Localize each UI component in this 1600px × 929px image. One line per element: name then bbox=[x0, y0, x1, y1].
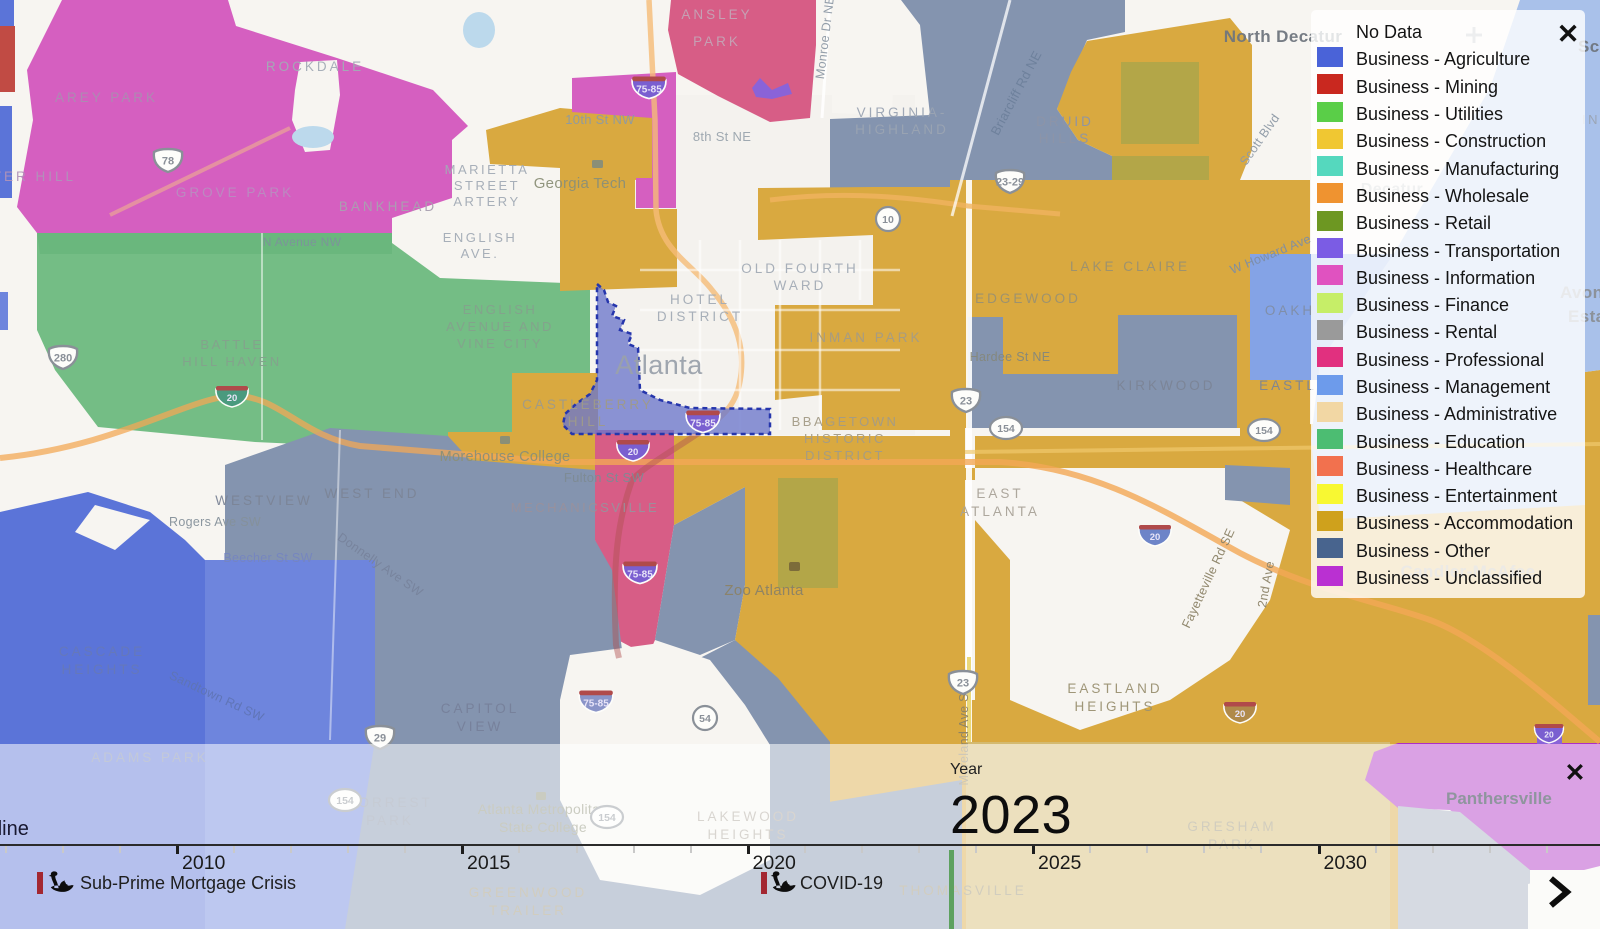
svg-text:ANSLEY: ANSLEY bbox=[681, 7, 752, 22]
svg-text:DRUID: DRUID bbox=[1036, 114, 1094, 129]
svg-text:HIGHLAND: HIGHLAND bbox=[855, 122, 949, 137]
svg-text:20: 20 bbox=[1235, 709, 1246, 720]
svg-text:75-85: 75-85 bbox=[690, 418, 716, 429]
svg-text:20: 20 bbox=[1150, 532, 1161, 543]
svg-text:ENGLISH: ENGLISH bbox=[443, 230, 518, 245]
svg-text:75-85: 75-85 bbox=[636, 84, 662, 95]
svg-text:Beecher St SW: Beecher St SW bbox=[223, 551, 312, 565]
svg-text:20: 20 bbox=[227, 393, 238, 404]
svg-text:HILLS: HILLS bbox=[1039, 131, 1092, 146]
svg-text:WEST END: WEST END bbox=[324, 486, 419, 501]
svg-text:HILL: HILL bbox=[568, 414, 609, 429]
svg-text:20: 20 bbox=[1544, 730, 1554, 740]
svg-text:AREY PARK: AREY PARK bbox=[55, 90, 158, 105]
svg-text:10: 10 bbox=[882, 214, 894, 226]
svg-text:GROVE PARK: GROVE PARK bbox=[176, 185, 294, 200]
svg-text:Morehouse College: Morehouse College bbox=[440, 449, 571, 465]
svg-text:75-85: 75-85 bbox=[583, 698, 609, 709]
svg-text:ENGLISH: ENGLISH bbox=[463, 302, 538, 317]
svg-text:29: 29 bbox=[374, 733, 386, 745]
svg-text:KIRKWOOD: KIRKWOOD bbox=[1116, 378, 1215, 393]
svg-text:DISTRICT: DISTRICT bbox=[805, 448, 885, 463]
svg-text:154: 154 bbox=[997, 423, 1015, 435]
svg-text:280: 280 bbox=[54, 353, 72, 365]
svg-text:HILL HAVEN: HILL HAVEN bbox=[182, 354, 281, 369]
svg-text:154: 154 bbox=[1255, 425, 1273, 437]
svg-text:ROCKDALE: ROCKDALE bbox=[266, 59, 364, 74]
svg-text:VIRGINIA-: VIRGINIA- bbox=[857, 105, 948, 120]
svg-text:BBAGETOWN: BBAGETOWN bbox=[792, 414, 899, 429]
svg-text:75-85: 75-85 bbox=[627, 569, 653, 580]
svg-text:HEIGHTS: HEIGHTS bbox=[1074, 699, 1155, 714]
svg-text:78: 78 bbox=[162, 156, 174, 168]
svg-text:N Avenue NW: N Avenue NW bbox=[263, 235, 342, 249]
svg-text:ARTERY: ARTERY bbox=[453, 194, 520, 209]
svg-text:Atlanta: Atlanta bbox=[615, 350, 703, 380]
svg-text:WESTVIEW: WESTVIEW bbox=[215, 493, 313, 508]
svg-text:AVE.: AVE. bbox=[461, 246, 500, 261]
svg-text:BATTLE: BATTLE bbox=[200, 337, 263, 352]
svg-text:MARIETTA: MARIETTA bbox=[445, 162, 530, 177]
svg-text:OAKH: OAKH bbox=[1265, 303, 1315, 318]
svg-text:Fulton St SW: Fulton St SW bbox=[564, 470, 645, 485]
svg-text:WARD: WARD bbox=[774, 278, 827, 293]
svg-text:Hardee St NE: Hardee St NE bbox=[970, 350, 1051, 364]
svg-text:HISTORIC: HISTORIC bbox=[804, 431, 886, 446]
svg-text:INMAN PARK: INMAN PARK bbox=[809, 330, 922, 345]
svg-text:LAKE CLAIRE: LAKE CLAIRE bbox=[1070, 259, 1190, 274]
svg-text:EDGEWOOD: EDGEWOOD bbox=[975, 291, 1081, 306]
svg-text:23: 23 bbox=[957, 678, 969, 690]
svg-text:VIEW: VIEW bbox=[457, 719, 504, 734]
svg-text:CASCADE: CASCADE bbox=[59, 644, 145, 659]
svg-text:CASTLEBERRY: CASTLEBERRY bbox=[522, 397, 654, 412]
svg-text:20: 20 bbox=[628, 447, 639, 458]
svg-text:BANKHEAD: BANKHEAD bbox=[339, 199, 437, 214]
svg-text:8th St NE: 8th St NE bbox=[693, 129, 751, 144]
svg-text:VINE CITY: VINE CITY bbox=[457, 336, 543, 351]
svg-text:Rogers Ave SW: Rogers Ave SW bbox=[169, 515, 261, 529]
svg-text:EASTL: EASTL bbox=[1259, 378, 1317, 393]
svg-text:EAST: EAST bbox=[976, 486, 1023, 501]
svg-text:NTER HILL: NTER HILL bbox=[0, 169, 76, 184]
svg-text:10th St NW: 10th St NW bbox=[565, 112, 635, 127]
svg-text:AVENUE AND: AVENUE AND bbox=[446, 319, 554, 334]
svg-text:HEIGHTS: HEIGHTS bbox=[61, 662, 142, 677]
svg-text:HOTEL: HOTEL bbox=[670, 292, 730, 307]
svg-text:MECHANICSVILLE: MECHANICSVILLE bbox=[511, 500, 659, 515]
svg-text:Georgia Tech: Georgia Tech bbox=[534, 175, 627, 192]
svg-text:PARK: PARK bbox=[693, 34, 741, 49]
svg-text:DISTRICT: DISTRICT bbox=[657, 309, 743, 324]
svg-text:ATLANTA: ATLANTA bbox=[960, 504, 1040, 519]
svg-text:STREET: STREET bbox=[454, 178, 520, 193]
svg-text:54: 54 bbox=[699, 713, 711, 725]
svg-text:Zoo Atlanta: Zoo Atlanta bbox=[724, 582, 804, 599]
svg-text:EASTLAND: EASTLAND bbox=[1067, 681, 1162, 696]
svg-text:CAPITOL: CAPITOL bbox=[441, 701, 520, 716]
svg-text:23: 23 bbox=[960, 396, 972, 408]
svg-text:OLD FOURTH: OLD FOURTH bbox=[741, 261, 859, 276]
svg-text:23-29: 23-29 bbox=[996, 177, 1024, 189]
